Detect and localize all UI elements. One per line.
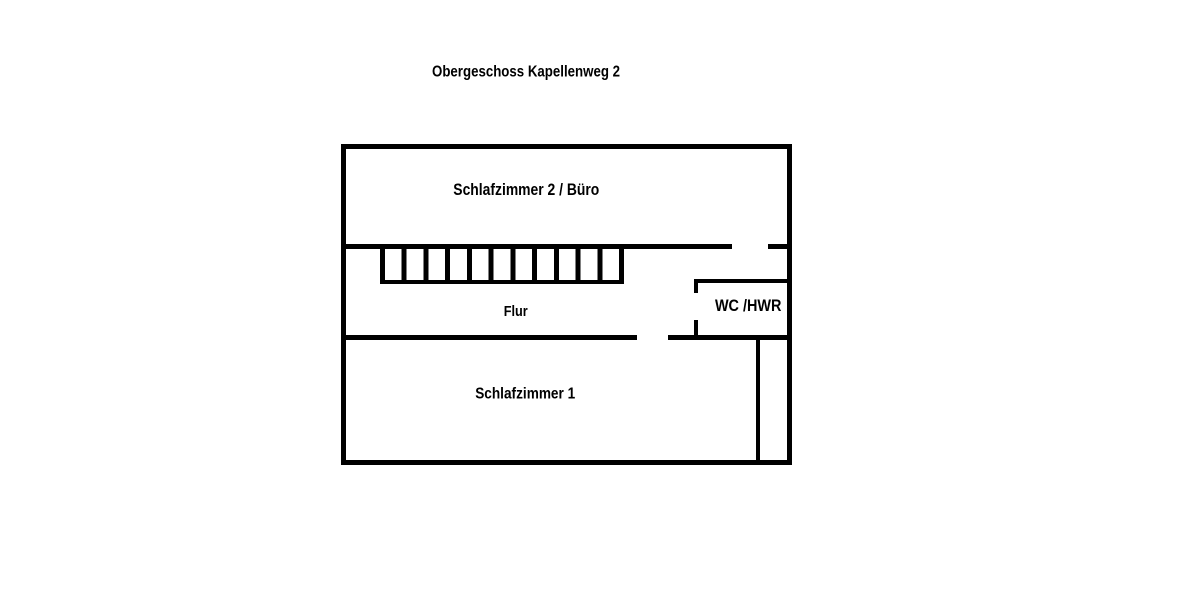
svg-text:Obergeschoss Kapellenweg 2: Obergeschoss Kapellenweg 2 bbox=[432, 64, 620, 81]
svg-text:Schlafzimmer 2 / Büro: Schlafzimmer 2 / Büro bbox=[453, 180, 599, 199]
svg-text:WC /HWR: WC /HWR bbox=[715, 296, 782, 315]
svg-text:Flur: Flur bbox=[504, 303, 528, 320]
svg-text:Schlafzimmer 1: Schlafzimmer 1 bbox=[475, 386, 575, 403]
